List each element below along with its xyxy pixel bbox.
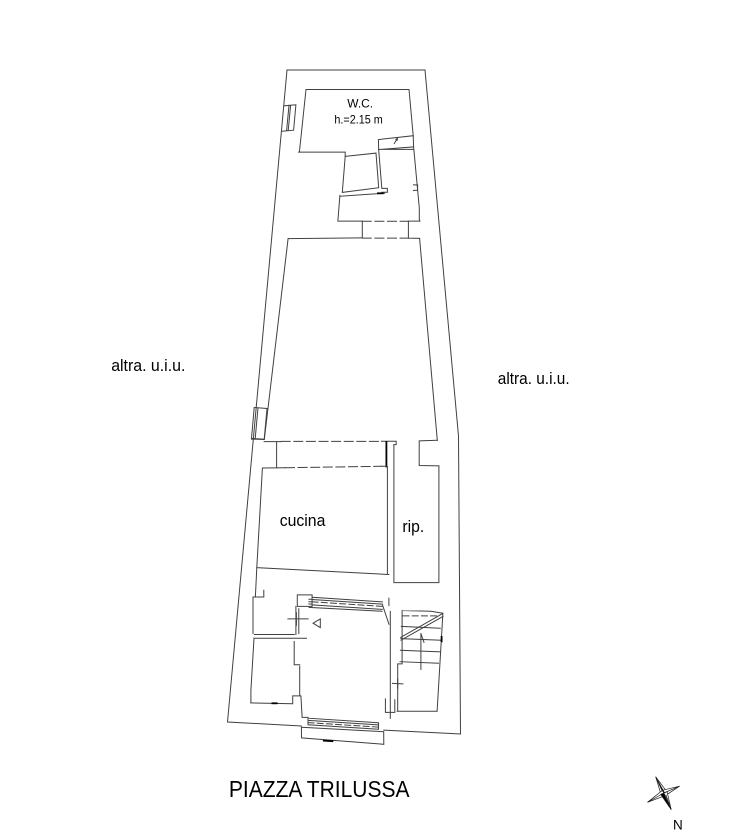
svg-text:W.C.: W.C. — [347, 97, 373, 111]
svg-text:cucina: cucina — [280, 511, 326, 530]
svg-text:altra. u.i.u.: altra. u.i.u. — [498, 370, 570, 388]
svg-text:h.=2.15 m: h.=2.15 m — [334, 113, 382, 127]
svg-text:rip.: rip. — [402, 517, 424, 536]
svg-text:PIAZZA TRILUSSA: PIAZZA TRILUSSA — [229, 776, 410, 802]
svg-text:altra. u.i.u.: altra. u.i.u. — [111, 357, 185, 375]
svg-text:N: N — [673, 818, 683, 833]
